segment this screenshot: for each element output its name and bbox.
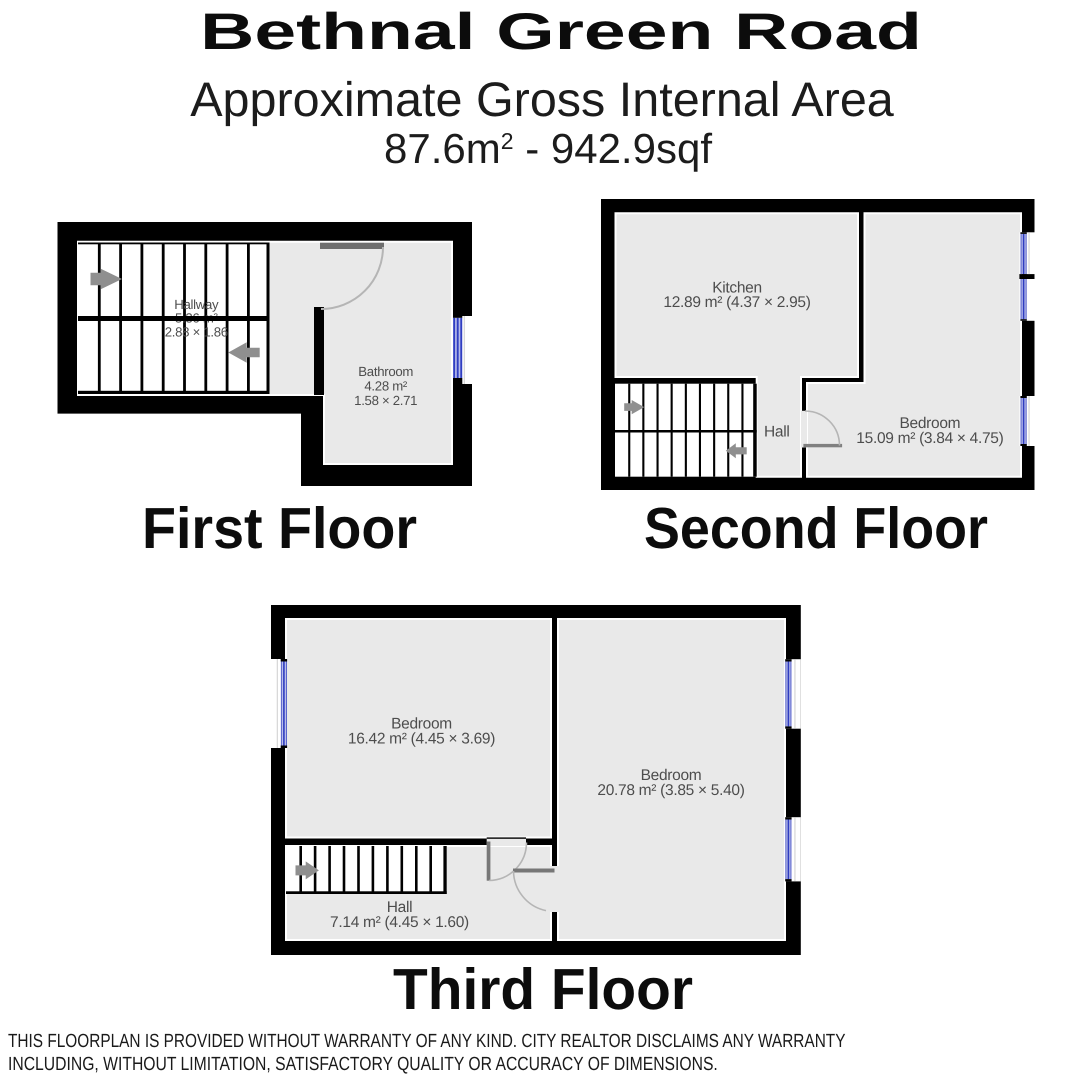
svg-text:87.6m2 - 942.9sqf: 87.6m2 - 942.9sqf [384,125,712,172]
svg-text:Bethnal Green Road: Bethnal Green Road [200,2,922,60]
svg-text:THIS FLOORPLAN IS PROVIDED WIT: THIS FLOORPLAN IS PROVIDED WITHOUT WARRA… [8,1031,846,1052]
svg-text:7.14 m² (4.45 × 1.60): 7.14 m² (4.45 × 1.60) [330,914,469,931]
svg-text:Approximate Gross Internal Are: Approximate Gross Internal Area [190,73,894,127]
svg-text:2.88 × 1.86: 2.88 × 1.86 [165,324,228,339]
svg-text:20.78 m² (3.85 × 5.40): 20.78 m² (3.85 × 5.40) [597,782,744,799]
svg-text:INCLUDING, WITHOUT LIMITATION,: INCLUDING, WITHOUT LIMITATION, SATISFACT… [8,1054,718,1075]
svg-text:16.42 m² (4.45 × 3.69): 16.42 m² (4.45 × 3.69) [348,731,495,748]
svg-text:Bathroom: Bathroom [358,364,413,379]
svg-text:Second Floor: Second Floor [644,496,988,561]
svg-text:12.89 m² (4.37 × 2.95): 12.89 m² (4.37 × 2.95) [663,294,810,311]
svg-text:1.58 × 2.71: 1.58 × 2.71 [354,393,417,408]
svg-text:Third Floor: Third Floor [393,957,693,1022]
svg-text:Hall: Hall [764,424,790,441]
svg-text:First Floor: First Floor [142,496,417,561]
svg-text:4.28 m²: 4.28 m² [364,379,408,394]
svg-text:15.09 m² (3.84 × 4.75): 15.09 m² (3.84 × 4.75) [856,430,1003,447]
